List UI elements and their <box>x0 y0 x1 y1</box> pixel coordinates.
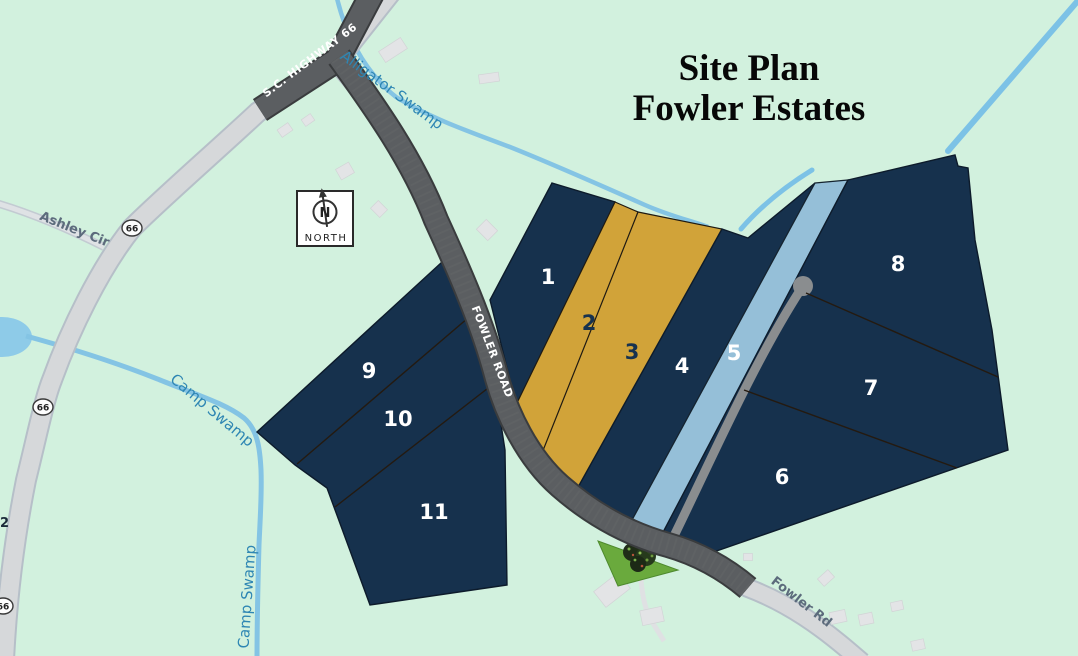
route-66-badge: 66 <box>122 220 142 236</box>
building <box>744 554 753 561</box>
edge-text-fragment: 2 <box>0 516 9 531</box>
building <box>858 612 874 626</box>
route-66-badge-text: 66 <box>0 603 9 613</box>
compass-label: NORTH <box>305 233 348 244</box>
lot-9-number: 9 <box>362 359 377 383</box>
page-title-line2: Fowler Estates <box>633 88 866 129</box>
lot-11-number: 11 <box>419 500 448 524</box>
route-66-badge-text: 66 <box>37 404 50 414</box>
driveway-bulb <box>793 276 813 296</box>
lot-8-number: 8 <box>891 252 906 276</box>
compass-box: N NORTH <box>297 187 353 246</box>
lot-7-number: 7 <box>864 376 879 400</box>
lot-1-number: 1 <box>541 265 556 289</box>
lot-2-number: 2 <box>582 311 597 335</box>
compass-letter: N <box>320 206 331 221</box>
site-plan-map: S.C. HIGHWAY 66 FOWLER ROAD Fowler Rd As… <box>0 0 1078 656</box>
lot-6-number: 6 <box>775 465 790 489</box>
lot-3-number: 3 <box>625 340 640 364</box>
lot-4-number: 4 <box>675 354 690 378</box>
route-66-badge: 66 <box>33 399 53 415</box>
page-title-line1: Site Plan <box>679 48 820 89</box>
lot-5-number: 5 <box>727 341 742 365</box>
route-66-badge: 66 <box>0 598 13 614</box>
lot-10-number: 10 <box>383 407 412 431</box>
route-66-badge-text: 66 <box>126 225 139 235</box>
map-canvas: S.C. HIGHWAY 66 FOWLER ROAD Fowler Rd As… <box>0 0 1078 656</box>
